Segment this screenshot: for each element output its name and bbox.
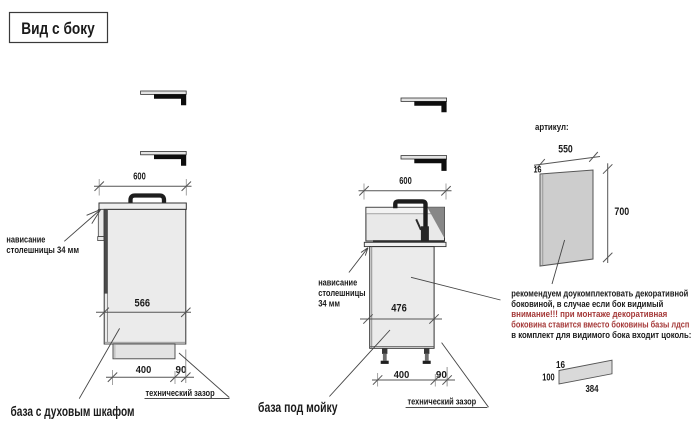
svg-text:600: 600 (133, 171, 146, 183)
svg-text:16: 16 (534, 165, 542, 175)
svg-text:артикул:: артикул: (535, 122, 569, 133)
svg-text:90: 90 (436, 369, 447, 381)
svg-text:16: 16 (556, 360, 565, 371)
svg-text:нависание: нависание (6, 235, 45, 245)
svg-text:нависание: нависание (318, 278, 357, 288)
svg-text:400: 400 (136, 364, 152, 376)
svg-text:384: 384 (585, 384, 598, 395)
svg-text:90: 90 (176, 364, 187, 376)
svg-text:технический зазор: технический зазор (408, 397, 477, 407)
svg-text:рекомендуем доукомплектовать д: рекомендуем доукомплектовать декоративно… (511, 288, 688, 298)
svg-text:в комплект для видимого бока в: в комплект для видимого бока входит цоко… (511, 330, 691, 340)
svg-text:476: 476 (391, 303, 407, 315)
svg-text:внимание!!! при монтаже декора: внимание!!! при монтаже декоративная (511, 309, 667, 319)
svg-text:боковиной, в случае если бок в: боковиной, в случае если бок видимый (511, 299, 663, 309)
svg-text:400: 400 (394, 369, 410, 381)
svg-text:700: 700 (614, 206, 629, 218)
svg-text:566: 566 (135, 297, 151, 309)
svg-text:550: 550 (558, 144, 573, 156)
svg-text:база с духовым шкафом: база с духовым шкафом (11, 404, 135, 419)
svg-text:Вид с боку: Вид с боку (21, 19, 95, 38)
svg-text:боковина ставится вместо боков: боковина ставится вместо боковины базы л… (511, 320, 689, 330)
svg-text:столешницы 34 мм: столешницы 34 мм (6, 245, 79, 255)
svg-text:столешницы: столешницы (318, 288, 365, 298)
svg-text:34 мм: 34 мм (318, 298, 340, 308)
svg-text:технический зазор: технический зазор (146, 388, 216, 398)
svg-text:100: 100 (542, 373, 555, 384)
svg-text:600: 600 (399, 175, 412, 187)
svg-text:база под мойку: база под мойку (258, 400, 338, 415)
